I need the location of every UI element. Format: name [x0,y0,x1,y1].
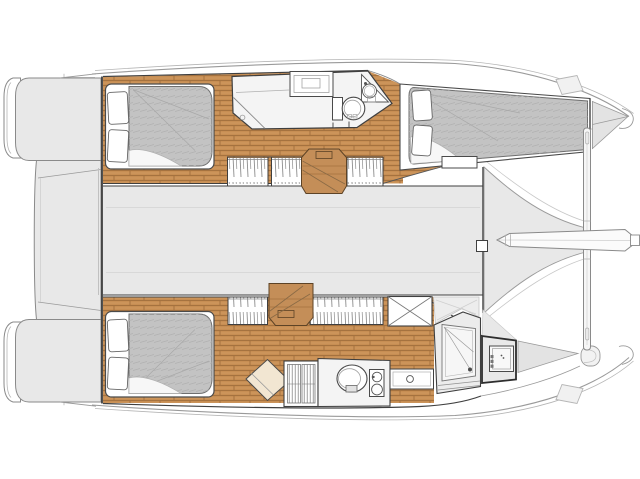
pillow [107,357,129,390]
toilet-cistern [333,98,343,121]
foot-locker [442,157,477,169]
deck-hatch-port [556,385,583,404]
aft-cabin-starboard [106,84,215,169]
aft-cockpit [34,161,101,320]
bow-wedge [518,341,578,373]
toilet-seat-hinge [346,386,357,393]
stern-area [4,74,101,406]
port-bow-roller [619,346,633,365]
pillow [411,125,432,156]
aft-cabin-port [106,312,215,398]
deck-hatch-starboard [556,76,583,95]
head-port [318,359,390,407]
louvered-doors [284,361,318,407]
forward-cabin-starboard [400,84,593,170]
forepeak-port [482,336,600,383]
saloon-floor [103,186,483,295]
starboard-hull [103,71,628,194]
catamaran-layout-plan [0,0,640,479]
port-hull [103,284,600,408]
sliding-door-handle [477,241,488,252]
pillow [411,90,432,121]
companionway-stairs-port [269,284,313,326]
bowsprit-tip-fitting [631,235,640,246]
layout-plan-page [0,0,640,479]
vanity-counter-port [390,369,434,389]
shower-stall-port [434,312,481,394]
companionway-stairs-starboard [302,149,347,194]
door-opening [333,124,349,126]
transom-platform-port [16,320,102,403]
engine-hatch-crossbox [388,297,432,327]
faucet-dot [364,82,367,85]
transom-slant-port [60,402,96,406]
transom-platform-starboard [16,78,102,161]
sidedeck-corner [482,310,516,340]
pillow [107,129,129,162]
head-starboard [232,71,392,129]
shower-drain [468,368,472,372]
pillow [107,319,129,352]
faucet-dot [372,376,374,378]
pillow [107,91,129,124]
